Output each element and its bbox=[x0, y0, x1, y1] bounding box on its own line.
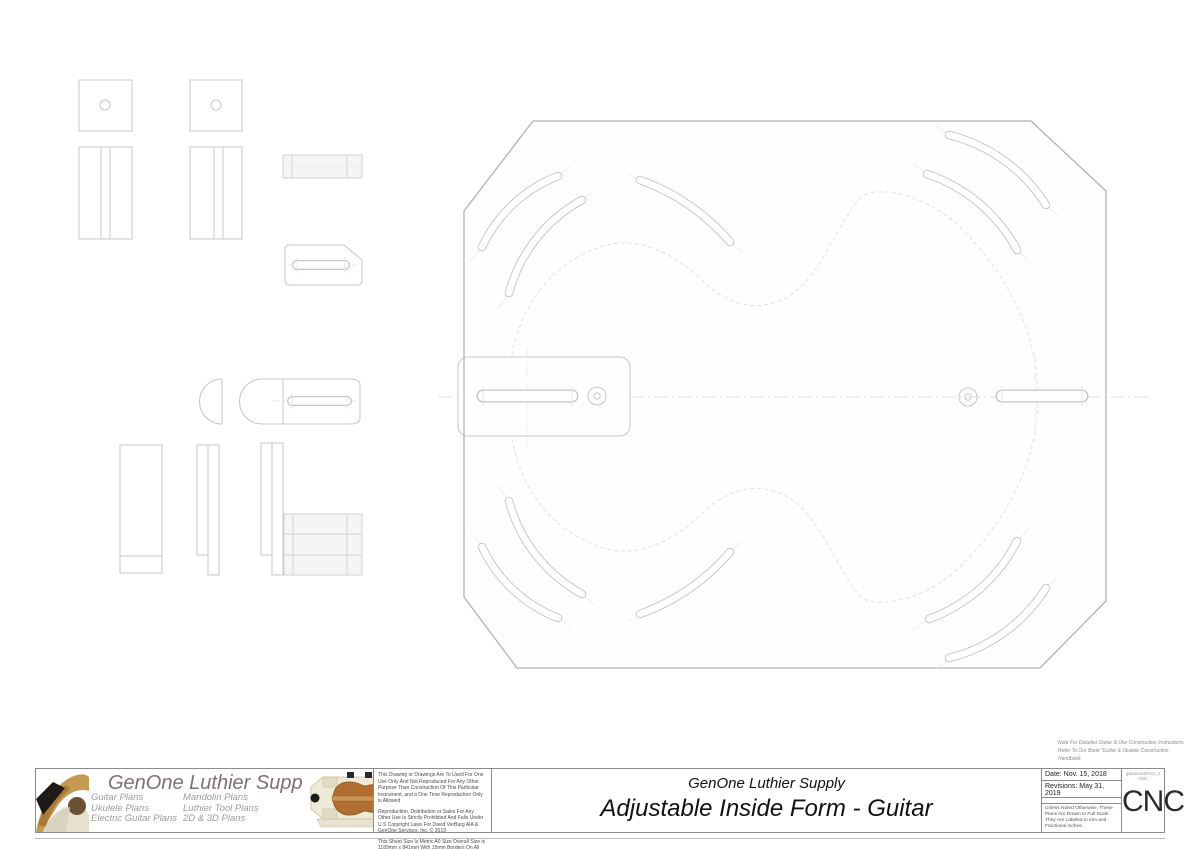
block-front-view-a bbox=[79, 147, 132, 239]
block-top-view-a bbox=[79, 80, 132, 131]
post-front-view bbox=[120, 445, 162, 573]
sheet-title: Adjustable Inside Form - Guitar bbox=[492, 795, 1041, 823]
construction-note: Note For Detailed Guitar & Uke Construct… bbox=[1058, 740, 1198, 763]
brand-categories-col1: Guitar Plans Ukulele Plans Electric Guit… bbox=[91, 793, 177, 825]
post-side-view-b bbox=[261, 443, 283, 575]
neck-slide-tab bbox=[458, 348, 630, 446]
revisions-field: Revisions: May 31, 2019 bbox=[1042, 781, 1121, 798]
legal-text-panel: This Drawing or Drawings Are To Used For… bbox=[373, 769, 491, 832]
spacer-bar-side-view bbox=[283, 155, 362, 178]
company-name: GenOne Luthier Supply bbox=[492, 775, 1041, 792]
technical-drawing-canvas bbox=[0, 0, 1200, 760]
block-front-view-b bbox=[190, 147, 242, 239]
revision-panel: Date: Nov. 15, 2018 Revisions: May 31, 2… bbox=[1041, 769, 1121, 832]
drawing-sheet: Note For Detailed Guitar & Uke Construct… bbox=[0, 0, 1200, 849]
note-line-1: Note For Detailed Guitar & Uke Construct… bbox=[1058, 740, 1198, 748]
slotted-clamp-plate-view bbox=[285, 245, 362, 285]
half-round-caul-view bbox=[200, 379, 223, 424]
guitar-in-form-photo bbox=[303, 769, 373, 832]
legal-paragraph-2: Reproduction, Distribution or Sales For … bbox=[378, 809, 487, 835]
block-top-view-b bbox=[190, 80, 242, 131]
base-block-section-view bbox=[284, 514, 362, 575]
date-field: Date: Nov. 15, 2018 bbox=[1042, 769, 1121, 781]
legal-paragraph-1: This Drawing or Drawings Are To Used For… bbox=[378, 772, 487, 805]
sheet-title-panel: GenOne Luthier Supply Adjustable Inside … bbox=[491, 769, 1041, 832]
brand-categories-col2: Mandolin Plans Luthier Tool Plans 2D & 3… bbox=[183, 793, 259, 825]
guitar-cutaway-photo bbox=[36, 769, 89, 832]
note-line-2: Refer To Our Book "Guitar & Ukulele Cons… bbox=[1058, 748, 1198, 756]
note-line-3: Handbook bbox=[1058, 756, 1198, 764]
sheet-bottom-rule bbox=[35, 838, 1165, 839]
category-item: Electric Guitar Plans bbox=[91, 814, 177, 825]
scale-note: Unless Noted Otherwise, These Plans Are … bbox=[1042, 804, 1121, 832]
brand-panel: GenOne Luthier Supplies Guitar Plans Uku… bbox=[36, 769, 373, 832]
cnc-panel: guitarinsideform_2 CNC CNC bbox=[1121, 769, 1164, 832]
slide-plate-view bbox=[240, 379, 361, 424]
title-block: GenOne Luthier Supplies Guitar Plans Uku… bbox=[35, 768, 1165, 833]
category-item: 2D & 3D Plans bbox=[183, 814, 259, 825]
cnc-filename: guitarinsideform_2 CNC bbox=[1122, 771, 1164, 781]
cnc-label: CNC bbox=[1122, 785, 1164, 819]
legal-paragraph-3: This Sheet Size Is Metric A0 Size Overal… bbox=[378, 839, 487, 849]
post-side-view-a bbox=[197, 445, 219, 575]
